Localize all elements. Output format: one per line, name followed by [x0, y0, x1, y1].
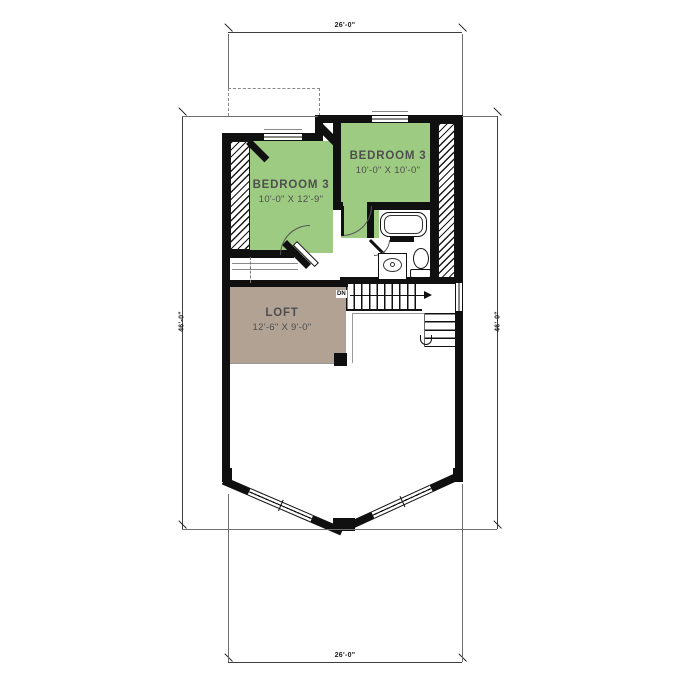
right-dimension-text: 46'-0": [495, 297, 502, 347]
bedroom-right-fill: [341, 122, 431, 206]
prow-wall-left: [222, 477, 344, 535]
stair-down-label: DN: [336, 290, 347, 298]
left-wall: [222, 133, 230, 482]
bedroom-left-size: 10'-0" X 12'-9": [231, 194, 351, 205]
dimension-tick: [458, 23, 467, 32]
toilet-bowl: [413, 248, 429, 269]
top-dimension-line: [228, 32, 462, 33]
loft-top-wall: [226, 280, 348, 287]
prow-wall-right: [344, 472, 461, 531]
toilet-tank: [410, 269, 431, 278]
open-below-edge-h: [352, 313, 424, 314]
wall-segment: [222, 477, 251, 495]
stair-landing-window: [455, 283, 463, 311]
stair-direction-line: [350, 295, 426, 296]
window-tick: [278, 500, 284, 511]
closet-rod-dashed: [250, 257, 251, 283]
bottom-dimension-text: 26'-0": [295, 652, 395, 659]
bath-right-wall: [430, 123, 438, 283]
extension-line: [182, 529, 497, 530]
top-dimension-text: 26'-0": [295, 22, 395, 29]
wall-segment: [429, 472, 461, 492]
dimension-tick: [178, 107, 187, 116]
extension-line: [462, 484, 463, 662]
bedroom-right-size: 10'-0" X 10'-0": [338, 165, 438, 176]
bedroom-right-window: [372, 115, 408, 123]
roof-outline-dashed: [228, 88, 320, 116]
left-dimension-text: 46'-0": [179, 297, 186, 347]
attic-hatch-right: [438, 123, 455, 280]
dimension-tick: [493, 107, 502, 116]
extension-line: [462, 116, 497, 117]
open-below-edge-v: [352, 313, 353, 363]
bedroom-left-window: [264, 133, 302, 141]
bedroom-right-door-leaf: [341, 206, 344, 236]
stair-direction-arrowhead: [424, 291, 432, 299]
extension-line: [228, 34, 229, 88]
sink-faucet-dot: [390, 262, 395, 267]
extension-line: [228, 494, 229, 662]
bedroom-left-name: BEDROOM 3: [231, 179, 351, 191]
loft-name: LOFT: [232, 307, 332, 319]
bathtub-inner-line: [384, 215, 423, 234]
prow-window-right: [371, 485, 433, 519]
extension-line: [462, 34, 463, 115]
closet-shelf-line: [232, 269, 298, 270]
bath-top-wall: [367, 202, 437, 210]
window-sill: [264, 129, 302, 130]
window-sill: [372, 111, 408, 112]
loft-size: 12'-6" X 9'-0": [232, 322, 332, 333]
closet-shelf-line: [232, 263, 298, 264]
loft-post: [334, 353, 347, 366]
floor-plan-canvas: DN BEDROOM 3 10'-0" X 12'-9" BEDROOM 3 1…: [0, 0, 700, 700]
loft-edge-line: [230, 363, 346, 364]
dimension-tick: [224, 23, 233, 32]
window-tick: [400, 496, 406, 507]
extension-line: [182, 116, 318, 117]
prow-window-left: [248, 488, 314, 522]
bedroom-right-name: BEDROOM 3: [338, 150, 438, 162]
bottom-dimension-line: [228, 662, 462, 663]
